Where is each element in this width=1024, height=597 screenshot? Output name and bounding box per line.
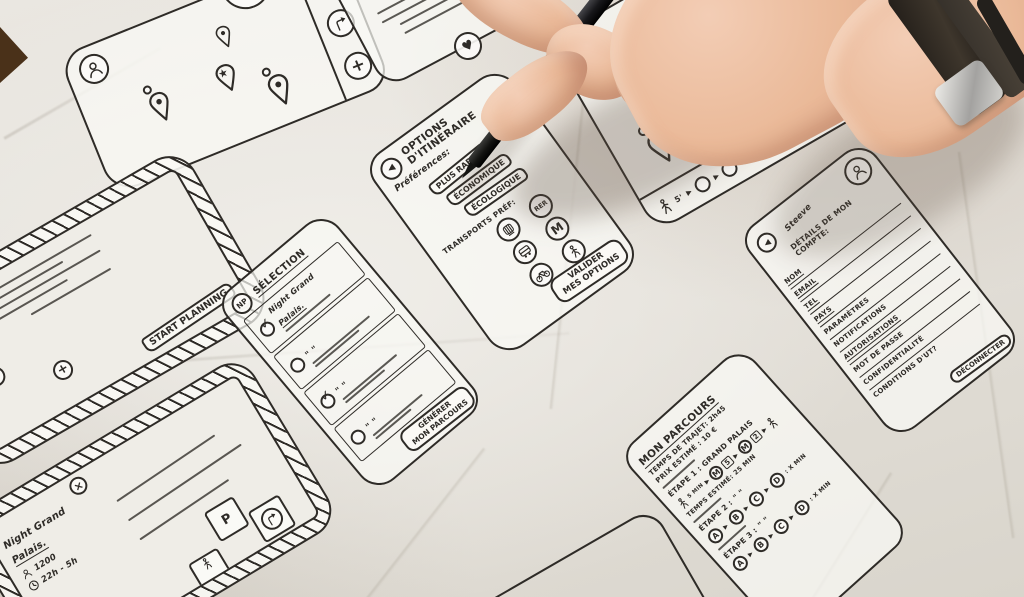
checkbox-checked: ✓ <box>257 318 278 339</box>
stop-letter: C <box>751 494 761 505</box>
back-arrow-icon: ◀ <box>386 163 397 175</box>
play-separator: ▶ <box>760 425 768 433</box>
parking-label: P <box>219 510 235 528</box>
play-separator: ▶ <box>731 451 739 459</box>
start-planning-button: START PLANNING <box>140 281 238 354</box>
metro-line-number: 2 <box>749 429 764 444</box>
plus-icon: + <box>55 361 72 379</box>
walk-button <box>188 547 234 592</box>
play-separator: ▶ <box>767 531 775 539</box>
stop-letter: B <box>756 539 767 550</box>
map-pin <box>211 22 240 55</box>
stop-c-icon: C <box>746 488 767 509</box>
metro-letter: M <box>548 219 566 237</box>
map-pin <box>140 79 181 130</box>
plus-icon: + <box>0 367 4 385</box>
map-pin-star: ★ <box>208 59 247 101</box>
play-separator: ▶ <box>703 477 711 485</box>
play-separator: ▶ <box>712 172 721 182</box>
back-arrow-icon: ◀ <box>762 237 772 248</box>
play-separator: ▶ <box>747 550 755 558</box>
heart-glyph: ♥ <box>459 37 477 56</box>
play-separator: ▶ <box>722 522 730 530</box>
photo-of-paper-wireframes: ▽ ★ + <box>0 0 1024 597</box>
map-pin <box>258 60 302 114</box>
stop-c-icon: C <box>771 516 792 537</box>
play-separator: ▶ <box>685 187 694 197</box>
stop-letter: D <box>772 475 783 486</box>
add-item-button: + <box>0 363 9 390</box>
directions-button <box>247 494 296 543</box>
stop-a-icon: A <box>730 553 751 574</box>
walk-icon <box>655 195 675 216</box>
walk-time: 5' <box>673 192 685 204</box>
checkbox-unchecked <box>347 426 368 447</box>
avatar-icon <box>75 49 114 88</box>
stop-d-icon: D <box>767 470 788 491</box>
stop-letter: A <box>735 558 746 569</box>
parking-button: P <box>203 496 250 543</box>
np-logo-label: NP <box>235 296 250 310</box>
stop-letter: A <box>710 530 721 541</box>
stop-letter: D <box>796 502 807 513</box>
logout-label: DÉCONNECTER <box>955 338 1007 379</box>
checkbox-checked: ✓ <box>317 390 338 411</box>
metro-letter: M <box>710 467 722 479</box>
close-icon: × <box>71 478 86 494</box>
stop-letter: C <box>776 521 786 532</box>
play-separator: ▶ <box>742 504 750 512</box>
check-icon: ✓ <box>317 386 335 405</box>
start-planning-label: START PLANNING <box>147 287 230 348</box>
sketch-map-screen: ▽ ★ + <box>58 0 392 196</box>
play-separator: ▶ <box>788 513 796 521</box>
check-icon: ✓ <box>256 314 274 333</box>
locate-button: ▽ <box>221 0 278 17</box>
add-item-button: + <box>49 356 76 383</box>
table-corner <box>0 27 28 83</box>
metro-letter: M <box>739 441 751 453</box>
play-separator: ▶ <box>763 485 771 493</box>
checkbox-unchecked <box>287 354 308 375</box>
plus-icon: + <box>348 54 369 78</box>
stop-letter: B <box>731 512 742 523</box>
metro-line-number: 5 <box>720 455 735 470</box>
clock-icon <box>26 578 41 593</box>
stop-d-icon: D <box>791 497 812 518</box>
